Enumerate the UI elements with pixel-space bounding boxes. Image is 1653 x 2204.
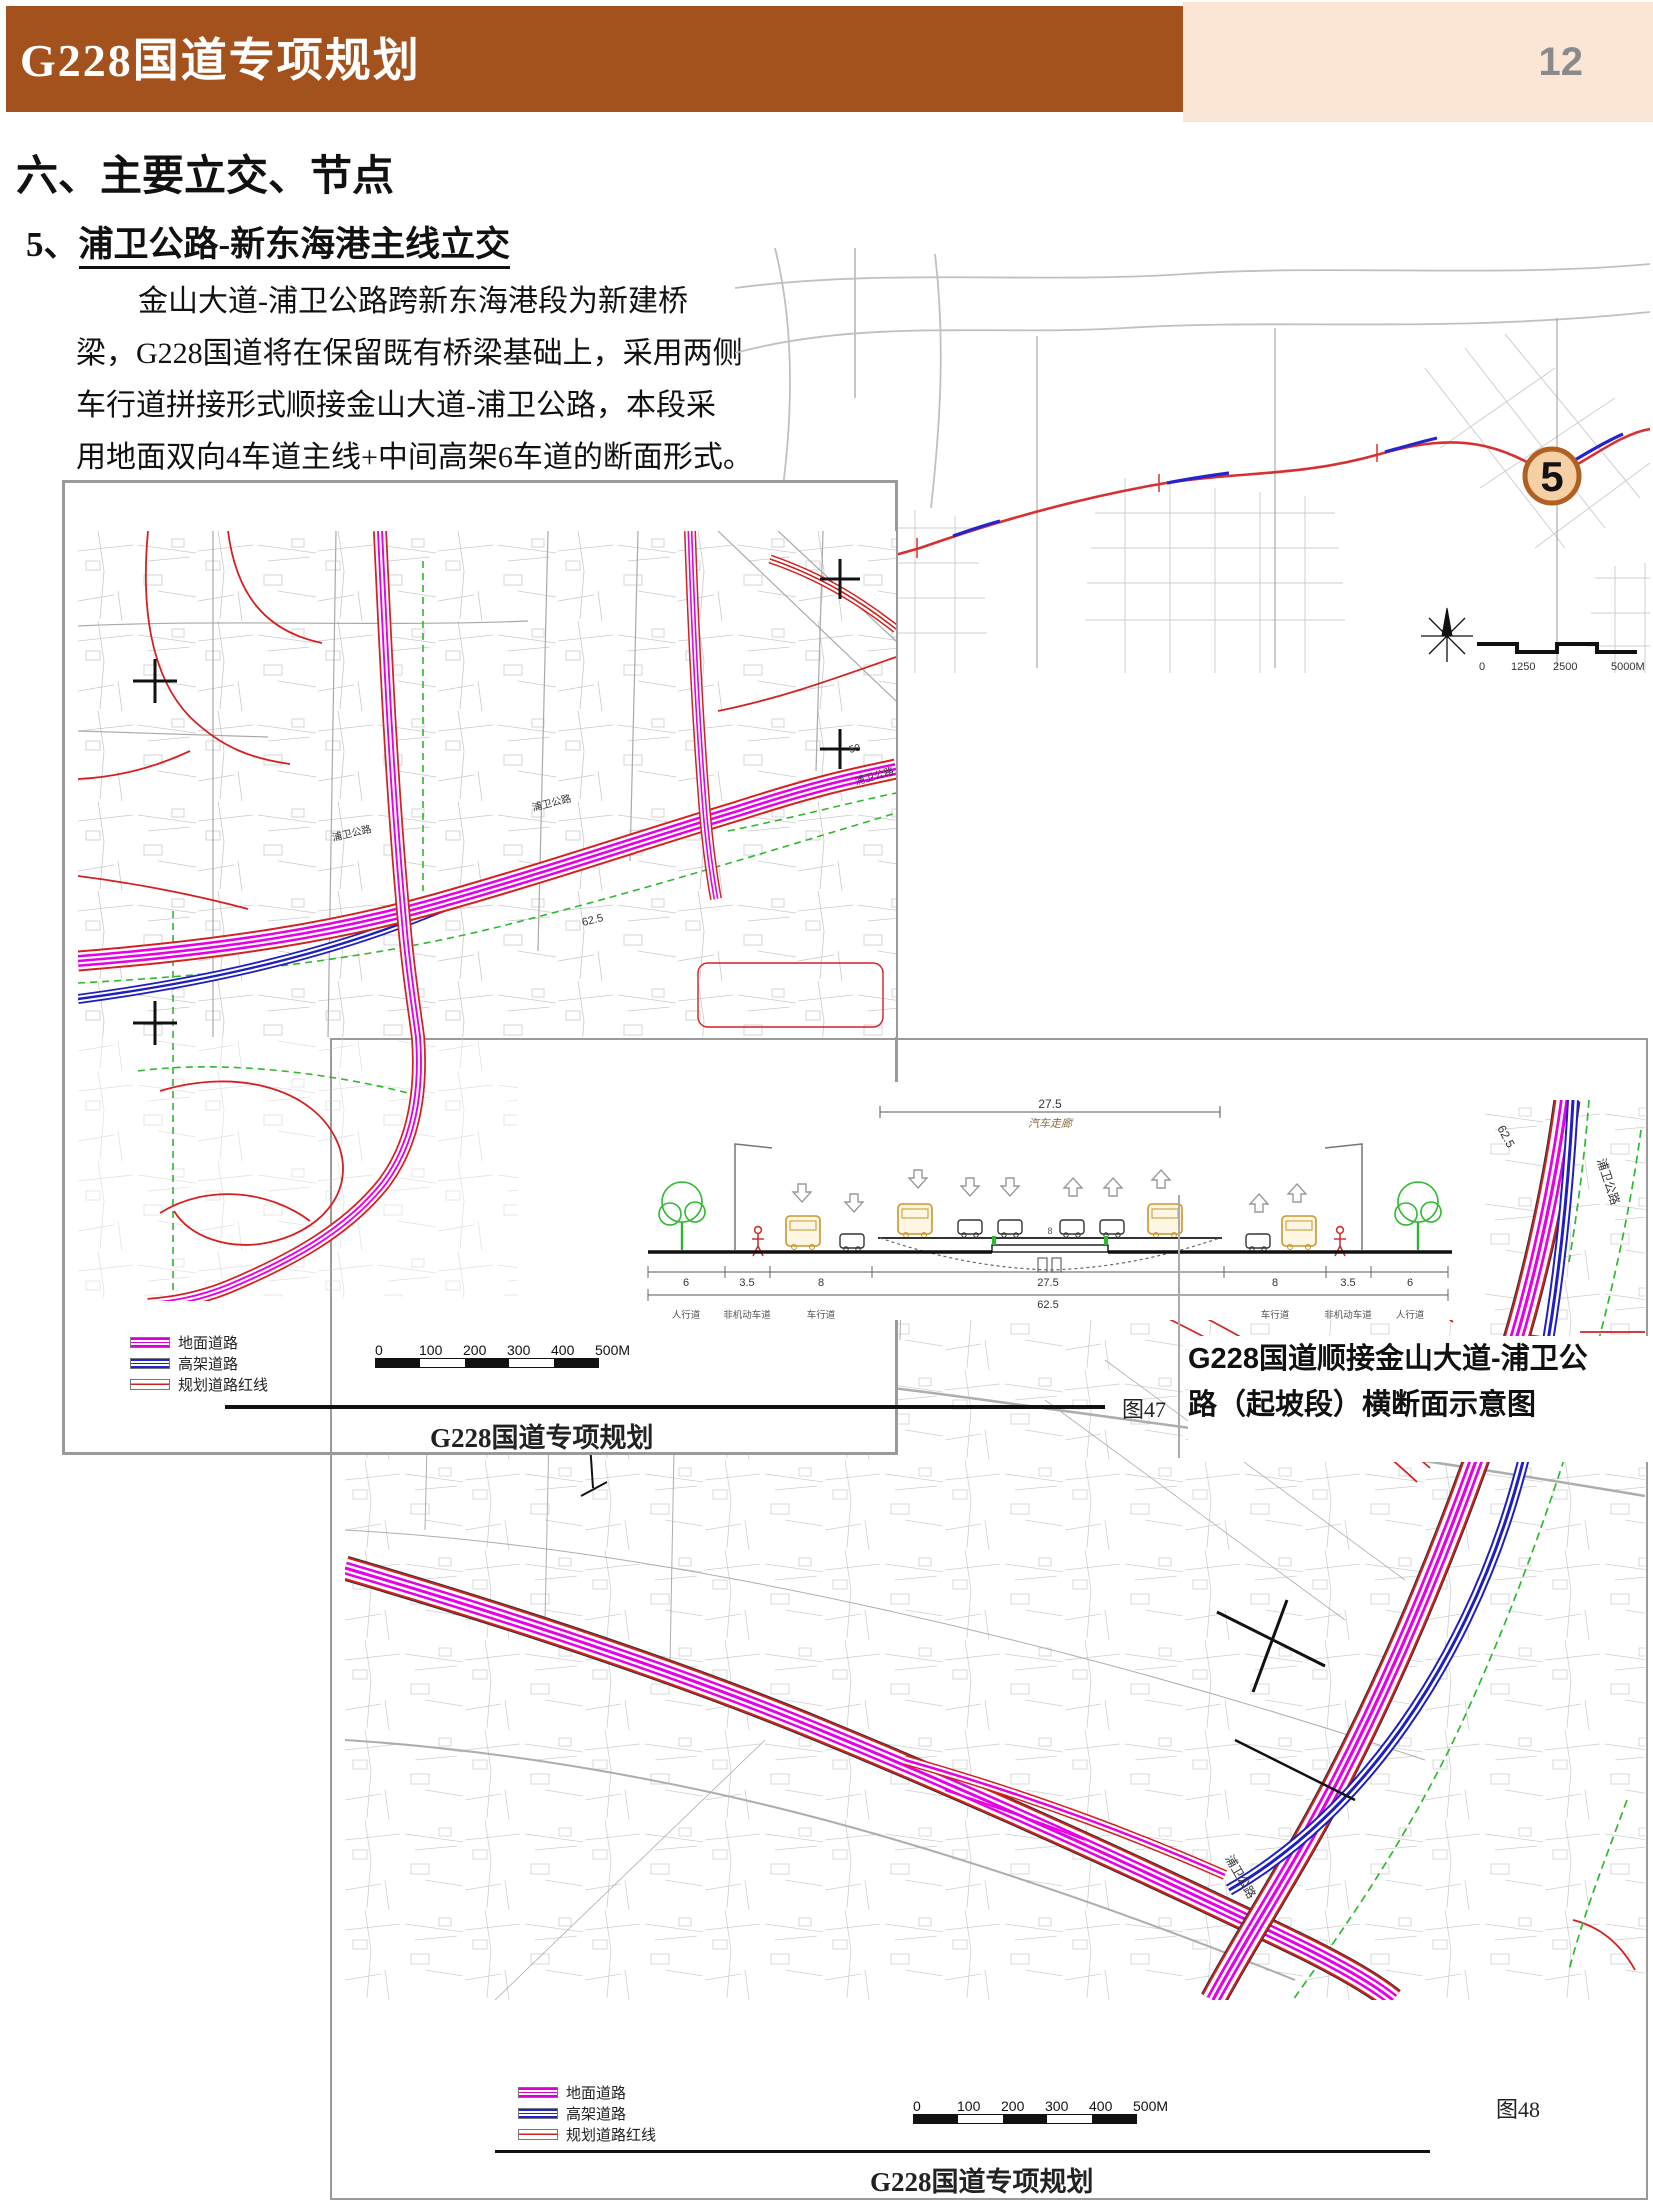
body-paragraph: 金山大道-浦卫公路跨新东海港段为新建桥 梁，G228国道将在保留既有桥梁基础上，… <box>76 276 736 484</box>
scale-bar <box>1477 644 1637 652</box>
svg-text:3.5: 3.5 <box>1340 1277 1355 1289</box>
sub-heading-text: 浦卫公路-新东海港主线立交 <box>79 225 511 269</box>
page-number-box: 12 <box>1183 2 1653 122</box>
svg-text:3.5: 3.5 <box>739 1277 754 1289</box>
cross-section-caption: G228国道顺接金山大道-浦卫公 路（起坡段）横断面示意图 <box>1188 1336 1650 1462</box>
svg-text:0: 0 <box>1479 661 1485 673</box>
paragraph-line: 车行道拼接形式顺接金山大道-浦卫公路，本段采 <box>76 380 736 432</box>
svg-text:非机动车道: 非机动车道 <box>723 1309 771 1320</box>
figure-47-rule <box>225 1405 1105 1409</box>
svg-text:人行道: 人行道 <box>1396 1309 1425 1320</box>
red-line-swatch <box>130 1379 170 1390</box>
figure-47-scalebar: 0100200300400500M <box>375 1342 639 1368</box>
compass-icon <box>1421 608 1473 662</box>
figure-48-caption: G228国道专项规划 <box>870 2160 1094 2199</box>
svg-text:6: 6 <box>683 1277 689 1289</box>
figure-47-legend: 地面道路 高架道路 规划道路红线 <box>130 1332 268 1395</box>
svg-text:车行道: 车行道 <box>807 1309 836 1320</box>
page-title: G228国道专项规划 <box>20 24 421 90</box>
paragraph-line: 用地面双向4车道主线+中间高架6车道的断面形式。 <box>76 432 736 484</box>
svg-text:5000M: 5000M <box>1611 661 1645 673</box>
section-heading: 六、主要立交、节点 <box>16 142 394 203</box>
svg-text:62.5: 62.5 <box>1037 1299 1058 1311</box>
svg-text:1250: 1250 <box>1511 661 1535 673</box>
svg-text:27.5: 27.5 <box>1037 1277 1058 1289</box>
node-marker-number: 5 <box>1540 453 1563 500</box>
svg-text:2500: 2500 <box>1553 661 1577 673</box>
ground-road-swatch <box>130 1337 170 1348</box>
cross-section-diagram: 27.5 汽车走廊 8 6 3.5 <box>640 1082 1460 1320</box>
svg-text:车行道: 车行道 <box>1261 1309 1290 1320</box>
paragraph-line: 金山大道-浦卫公路跨新东海港段为新建桥 <box>76 276 736 328</box>
red-line-swatch <box>518 2129 558 2140</box>
svg-text:人行道: 人行道 <box>672 1309 701 1320</box>
figure-47-caption: G228国道专项规划 <box>430 1416 654 1455</box>
sub-heading-number: 5、 <box>26 225 79 264</box>
paragraph-line: 梁，G228国道将在保留既有桥梁基础上，采用两侧 <box>76 328 736 380</box>
svg-text:8: 8 <box>1047 1226 1052 1236</box>
page-number: 12 <box>1539 40 1584 85</box>
sub-heading: 5、浦卫公路-新东海港主线立交 <box>26 216 510 267</box>
figure-48-number: 图48 <box>1496 2092 1540 2124</box>
svg-text:8: 8 <box>1272 1277 1278 1289</box>
figure-48-scalebar: 0100200300400500M <box>913 2098 1177 2124</box>
elevated-road-swatch <box>130 1358 170 1369</box>
svg-text:27.5: 27.5 <box>1038 1097 1062 1111</box>
svg-text:非机动车道: 非机动车道 <box>1324 1309 1372 1320</box>
panel-divider <box>1178 1195 1180 1458</box>
figure-47-number: 图47 <box>1122 1392 1166 1424</box>
document-page: G228国道专项规划 12 六、主要立交、节点 5、浦卫公路-新东海港主线立交 … <box>0 0 1653 2204</box>
svg-text:8: 8 <box>818 1277 824 1289</box>
svg-text:6: 6 <box>1407 1277 1413 1289</box>
figure-48-rule <box>495 2150 1430 2153</box>
svg-text:汽车走廊: 汽车走廊 <box>1028 1117 1074 1130</box>
figure-48-legend: 地面道路 高架道路 规划道路红线 <box>518 2082 656 2145</box>
elevated-road-swatch <box>518 2108 558 2119</box>
ground-road-swatch <box>518 2087 558 2098</box>
